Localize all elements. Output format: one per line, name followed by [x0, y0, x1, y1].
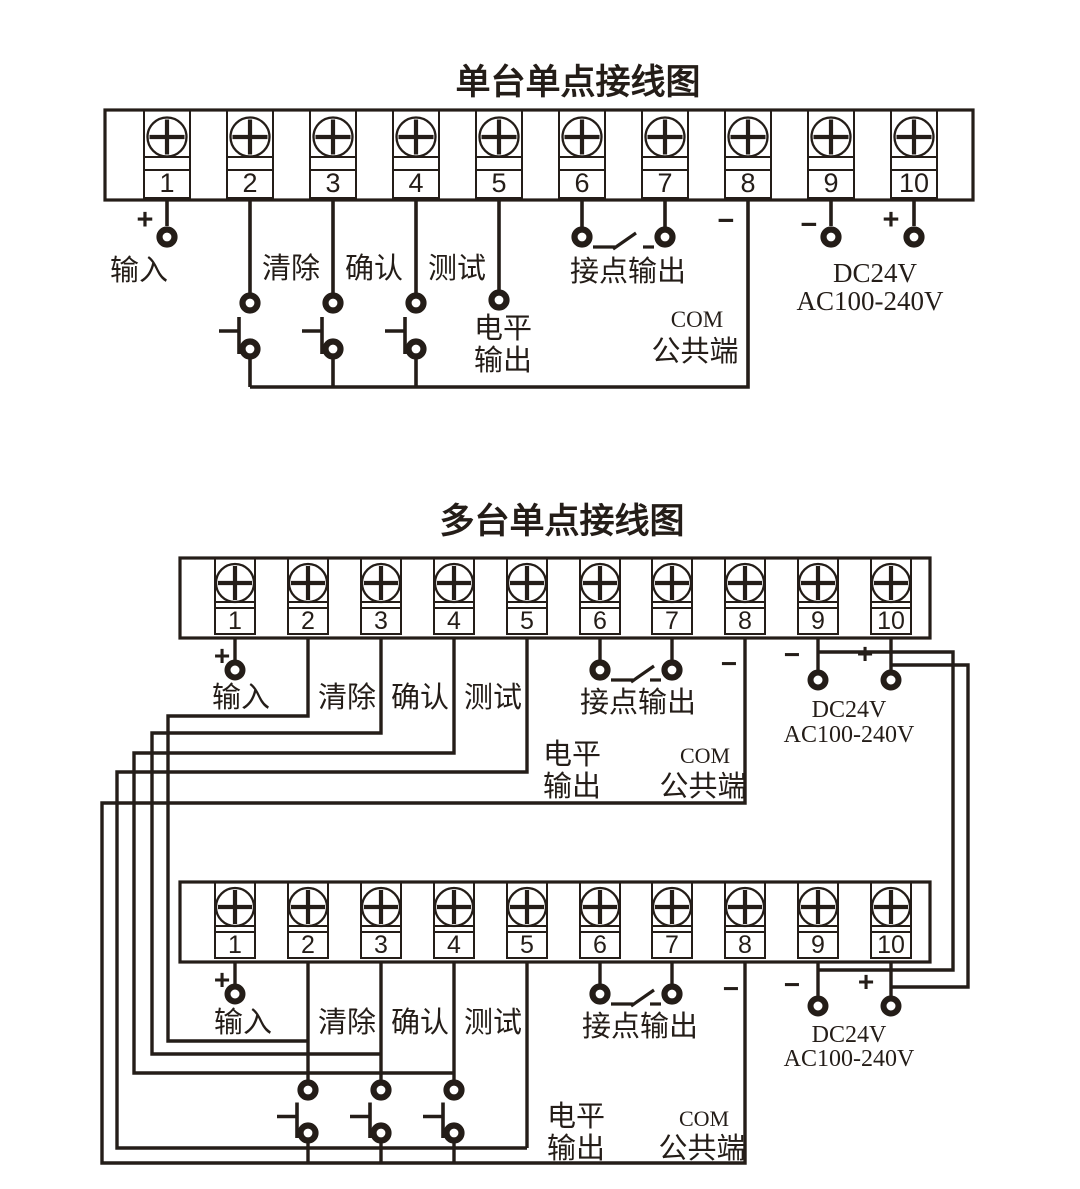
- terminal-number: 1: [228, 607, 242, 635]
- polarity-plus: +: [857, 638, 873, 669]
- push-button-symbol: [423, 1083, 462, 1141]
- label-contact-output: 接点输出: [580, 686, 696, 719]
- connection-point: [907, 230, 922, 245]
- label-level-output-2: 输出: [547, 1132, 605, 1165]
- connection-point: [160, 230, 175, 245]
- connection-point: [326, 342, 341, 357]
- terminal-cell: 5: [507, 558, 547, 635]
- terminal-number: 1: [228, 931, 242, 959]
- contact-moving-blade: [613, 233, 636, 249]
- terminal-number: 7: [665, 607, 679, 635]
- terminal-cell: 9: [808, 110, 854, 198]
- screw-terminal-icon: [563, 118, 602, 157]
- terminal-number: 10: [877, 931, 905, 959]
- terminal-number: 10: [899, 168, 929, 198]
- terminal-number: 6: [593, 931, 607, 959]
- terminal-cell: 10: [871, 558, 911, 635]
- terminal-cell: 2: [288, 558, 328, 635]
- label-level-output-2: 输出: [474, 344, 532, 377]
- label-test: 测试: [428, 252, 486, 285]
- connection-point: [884, 673, 899, 688]
- label-power-ac: AC100-240V: [784, 722, 915, 748]
- label-level-output-1: 电平: [543, 738, 601, 771]
- terminal-cell: 2: [288, 882, 328, 959]
- terminal-cell: 6: [580, 558, 620, 635]
- terminal-number: 2: [301, 607, 315, 635]
- polarity-plus: +: [137, 204, 154, 236]
- label-contact-output: 接点输出: [582, 1010, 698, 1043]
- label-clear: 清除: [318, 681, 376, 714]
- terminal-number: 9: [811, 607, 825, 635]
- terminal-cell: 3: [361, 882, 401, 959]
- connection-point: [243, 296, 258, 311]
- relay-contact-symbol: [593, 987, 680, 1007]
- connection-point: [301, 1083, 316, 1098]
- connection-point: [593, 663, 608, 678]
- terminal-cell: 7: [652, 882, 692, 959]
- terminal-strip: 12345678910: [105, 110, 973, 200]
- connection-point: [593, 987, 608, 1002]
- connection-point: [243, 342, 258, 357]
- terminal-number: 5: [520, 607, 534, 635]
- terminal-cell: 3: [310, 110, 356, 198]
- polarity-minus: −: [721, 648, 737, 679]
- label-power-dc: DC24V: [812, 1022, 887, 1048]
- label-com-common: 公共端: [658, 1132, 745, 1165]
- push-button-symbol: [302, 296, 341, 357]
- screw-terminal-icon: [435, 888, 473, 926]
- label-com: COM: [671, 307, 723, 332]
- terminal-cell: 5: [507, 882, 547, 959]
- screw-terminal-icon: [653, 564, 691, 602]
- relay-contact-symbol: [575, 230, 673, 250]
- connection-point: [811, 673, 826, 688]
- label-power-ac: AC100-240V: [797, 286, 944, 316]
- label-com: COM: [679, 1106, 729, 1131]
- screw-terminal-icon: [397, 118, 436, 157]
- diagram-title: 单台单点接线图: [455, 63, 700, 102]
- polarity-plus: +: [883, 204, 900, 236]
- terminal-number: 2: [242, 168, 257, 198]
- screw-terminal-icon: [799, 888, 837, 926]
- screw-terminal-icon: [872, 888, 910, 926]
- screw-terminal-icon: [646, 118, 685, 157]
- terminal-number: 7: [665, 931, 679, 959]
- screw-terminal-icon: [726, 888, 764, 926]
- terminal-number: 6: [593, 607, 607, 635]
- screw-terminal-icon: [581, 564, 619, 602]
- terminal-number: 5: [520, 931, 534, 959]
- terminal-number: 1: [159, 168, 174, 198]
- label-level-output-1: 电平: [547, 1100, 605, 1133]
- connection-point: [326, 296, 341, 311]
- push-button-symbol: [385, 296, 424, 357]
- terminal-cell: 4: [434, 882, 474, 959]
- connection-point: [409, 342, 424, 357]
- connection-point: [658, 230, 673, 245]
- connection-point: [374, 1126, 389, 1141]
- terminal-cell: 8: [725, 110, 771, 198]
- label-power-ac: AC100-240V: [784, 1046, 915, 1072]
- wiring-diagram-page: 单台单点接线图12345678910+输入清除确认测试电平输出接点输出−COM公…: [0, 0, 1080, 1189]
- terminal-number: 4: [408, 168, 423, 198]
- connection-point: [301, 1126, 316, 1141]
- terminal-number: 10: [877, 607, 905, 635]
- terminal-cell: 1: [215, 882, 255, 959]
- terminal-cell: 1: [215, 558, 255, 635]
- terminal-number: 8: [740, 168, 755, 198]
- label-input: 输入: [214, 1006, 272, 1039]
- terminal-cell: 1: [144, 110, 190, 198]
- push-button-symbol: [350, 1083, 389, 1141]
- label-test: 测试: [464, 681, 522, 714]
- connection-point: [575, 230, 590, 245]
- terminal-number: 4: [447, 607, 461, 635]
- label-contact-output: 接点输出: [570, 255, 686, 288]
- push-button-symbol: [219, 296, 258, 357]
- connection-point: [884, 999, 899, 1014]
- label-com: COM: [680, 743, 730, 768]
- terminal-cell: 10: [871, 882, 911, 959]
- terminal-number: 3: [374, 931, 388, 959]
- label-input: 输入: [212, 681, 270, 714]
- polarity-plus: +: [858, 966, 874, 997]
- connection-point: [374, 1083, 389, 1098]
- terminal-number: 6: [574, 168, 589, 198]
- connection-point: [811, 999, 826, 1014]
- terminal-number: 7: [657, 168, 672, 198]
- connection-point: [409, 296, 424, 311]
- screw-terminal-icon: [581, 888, 619, 926]
- label-confirm: 确认: [391, 681, 449, 714]
- diagram-single-unit: 单台单点接线图12345678910+输入清除确认测试电平输出接点输出−COM公…: [105, 63, 973, 387]
- screw-terminal-icon: [729, 118, 768, 157]
- label-input: 输入: [110, 254, 168, 287]
- terminal-number: 3: [374, 607, 388, 635]
- terminal-number: 8: [738, 931, 752, 959]
- terminal-number: 9: [823, 168, 838, 198]
- terminal-cell: 9: [798, 558, 838, 635]
- screw-terminal-icon: [435, 564, 473, 602]
- connection-point: [447, 1126, 462, 1141]
- terminal-cell: 4: [434, 558, 474, 635]
- terminal-cell: 7: [642, 110, 688, 198]
- terminal-number: 2: [301, 931, 315, 959]
- screw-terminal-icon: [812, 118, 851, 157]
- label-clear: 清除: [262, 252, 320, 285]
- wiring-diagram-canvas: 单台单点接线图12345678910+输入清除确认测试电平输出接点输出−COM公…: [0, 0, 1080, 1189]
- label-confirm: 确认: [391, 1006, 449, 1039]
- terminal-number: 8: [738, 607, 752, 635]
- screw-terminal-icon: [362, 888, 400, 926]
- terminal-number: 5: [491, 168, 506, 198]
- terminal-cell: 2: [227, 110, 273, 198]
- label-power-dc: DC24V: [812, 697, 887, 723]
- relay-contact-symbol: [593, 663, 680, 683]
- connection-point: [665, 663, 680, 678]
- terminal-cell: 7: [652, 558, 692, 635]
- label-level-output-2: 输出: [543, 770, 601, 803]
- screw-terminal-icon: [799, 564, 837, 602]
- screw-terminal-icon: [289, 564, 327, 602]
- terminal-strip: 12345678910: [180, 882, 930, 962]
- terminal-number: 9: [811, 931, 825, 959]
- terminal-number: 3: [325, 168, 340, 198]
- screw-terminal-icon: [216, 564, 254, 602]
- polarity-minus: −: [723, 973, 739, 1004]
- polarity-minus: −: [801, 209, 818, 241]
- screw-terminal-icon: [480, 118, 519, 157]
- diagram-multi-unit: 多台单点接线图1234567891012345678910+输入清除确认测试电平…: [102, 502, 968, 1165]
- polarity-minus: −: [784, 639, 800, 670]
- screw-terminal-icon: [508, 888, 546, 926]
- connection-point: [228, 987, 243, 1002]
- screw-terminal-icon: [314, 118, 353, 157]
- screw-terminal-icon: [653, 888, 691, 926]
- terminal-cell: 6: [580, 882, 620, 959]
- screw-terminal-icon: [895, 118, 934, 157]
- polarity-minus: −: [718, 205, 735, 237]
- connection-point: [824, 230, 839, 245]
- screw-terminal-icon: [872, 564, 910, 602]
- connection-point: [447, 1083, 462, 1098]
- screw-terminal-icon: [289, 888, 327, 926]
- push-button-symbol: [277, 1083, 316, 1141]
- screw-terminal-icon: [148, 118, 187, 157]
- label-clear: 清除: [318, 1006, 376, 1039]
- diagram-title: 多台单点接线图: [439, 502, 684, 541]
- terminal-cell: 8: [725, 882, 765, 959]
- screw-terminal-icon: [362, 564, 400, 602]
- label-com-common: 公共端: [651, 335, 738, 368]
- screw-terminal-icon: [508, 564, 546, 602]
- connection-point: [665, 987, 680, 1002]
- terminal-cell: 8: [725, 558, 765, 635]
- terminal-cell: 6: [559, 110, 605, 198]
- terminal-cell: 4: [393, 110, 439, 198]
- terminal-cell: 10: [891, 110, 937, 198]
- terminal-number: 4: [447, 931, 461, 959]
- label-level-output-1: 电平: [474, 312, 532, 345]
- connection-point: [228, 663, 243, 678]
- terminal-cell: 5: [476, 110, 522, 198]
- terminal-cell: 3: [361, 558, 401, 635]
- connection-point: [492, 293, 507, 308]
- screw-terminal-icon: [231, 118, 270, 157]
- screw-terminal-icon: [726, 564, 764, 602]
- polarity-minus: −: [784, 969, 800, 1000]
- terminal-cell: 9: [798, 882, 838, 959]
- label-test: 测试: [464, 1006, 522, 1039]
- label-power-dc: DC24V: [833, 258, 918, 288]
- label-com-common: 公共端: [659, 770, 746, 803]
- screw-terminal-icon: [216, 888, 254, 926]
- label-confirm: 确认: [345, 252, 403, 285]
- terminal-strip: 12345678910: [180, 558, 930, 638]
